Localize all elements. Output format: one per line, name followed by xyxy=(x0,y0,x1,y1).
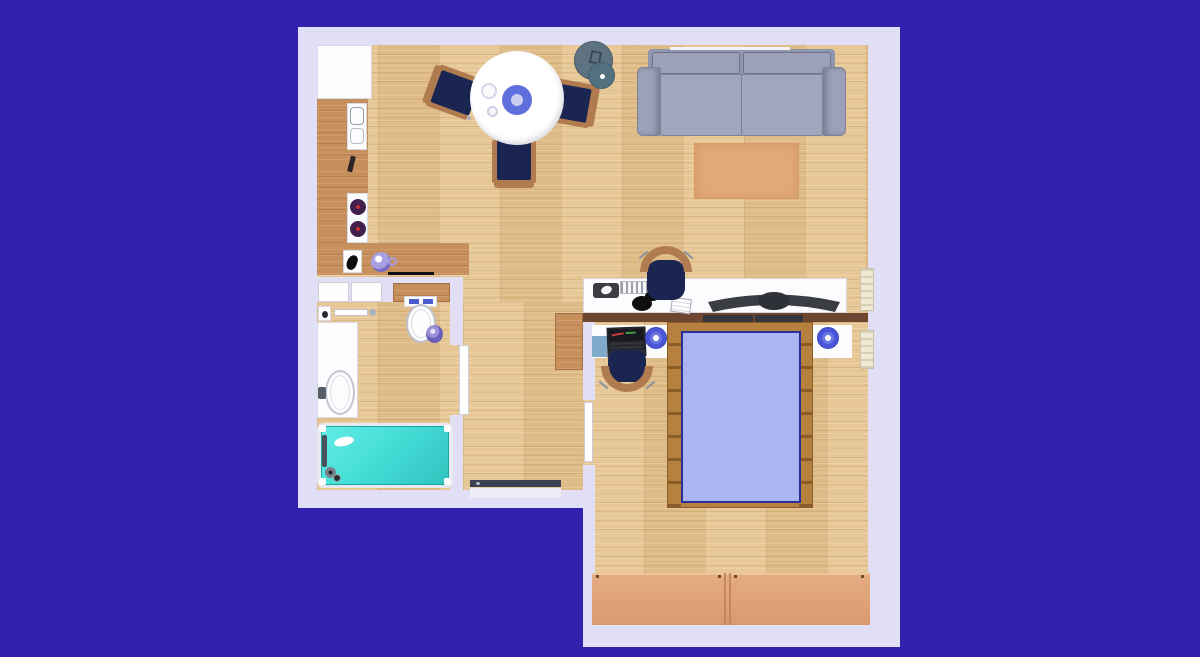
wardrobe-seam-1 xyxy=(724,573,726,625)
soap-dispenser[interactable] xyxy=(318,306,331,321)
bedroom-chair[interactable] xyxy=(600,350,656,406)
tub-corner-4 xyxy=(444,478,451,485)
bedside-lamp-right[interactable] xyxy=(817,327,839,349)
towel-bar[interactable] xyxy=(334,309,368,316)
chair-seat xyxy=(497,139,531,180)
sofa-arm-right xyxy=(822,67,846,136)
basin-faucet xyxy=(318,387,326,399)
wardrobe-seam-2 xyxy=(729,573,731,625)
radiator-upper[interactable] xyxy=(860,268,874,311)
table-glass[interactable] xyxy=(481,83,497,99)
bathroom-door-leaf[interactable] xyxy=(459,345,469,415)
wardrobe-top-highlight xyxy=(592,573,870,575)
lamp-bulb-dot xyxy=(600,74,605,79)
tub-drain xyxy=(333,474,341,482)
cooktop[interactable] xyxy=(347,193,368,243)
wall-knob xyxy=(369,309,376,316)
laptop-screen xyxy=(609,328,644,341)
burner-bottom xyxy=(350,221,366,237)
mouse xyxy=(600,284,613,295)
tub-corner-1 xyxy=(319,425,326,432)
tub-faucet-pipe xyxy=(322,435,327,467)
plate-center xyxy=(511,94,523,106)
wall-left xyxy=(298,27,317,508)
wardrobe-handle-2 xyxy=(718,575,721,578)
table-plate[interactable] xyxy=(502,85,532,115)
bedside-lamp-left[interactable] xyxy=(645,327,667,349)
table-cup[interactable] xyxy=(487,106,498,117)
bed-rail-left xyxy=(668,323,681,507)
vanity-counter[interactable] xyxy=(317,322,358,418)
radiator-lower[interactable] xyxy=(860,330,874,369)
flush-button-left[interactable] xyxy=(409,299,419,304)
kitchen-sink[interactable] xyxy=(347,103,367,150)
wall-bedroom-top-glass-2 xyxy=(755,315,803,322)
burner-top xyxy=(350,199,366,215)
sofa-top-highlight xyxy=(670,47,790,50)
wall-bathroom-hall-upper xyxy=(450,295,463,345)
kitchen-corner-unit[interactable] xyxy=(343,250,362,273)
wall-bottom-bedroom xyxy=(583,625,900,647)
waste-bin[interactable] xyxy=(426,325,443,343)
sink-basin-bottom xyxy=(350,128,364,144)
bathtub[interactable] xyxy=(317,423,453,488)
entry-door-threshold xyxy=(470,488,561,498)
wall-door-panel-1[interactable] xyxy=(318,282,349,302)
wardrobe-handle-3 xyxy=(734,575,737,578)
wall-bedroom-top-glass-1 xyxy=(703,315,753,322)
rug[interactable] xyxy=(694,143,799,199)
sofa-seat-left xyxy=(660,74,742,136)
black-kettle xyxy=(345,254,359,271)
sofa-arm-left xyxy=(637,67,661,136)
sink-basin-top xyxy=(350,107,364,125)
washbasin xyxy=(325,370,355,415)
bedroom-door-leaf[interactable] xyxy=(584,402,593,462)
floor-plan-canvas xyxy=(0,0,1200,657)
wardrobe-handle-1 xyxy=(596,575,599,578)
wardrobe[interactable] xyxy=(592,573,870,625)
wardrobe-handle-4 xyxy=(861,575,864,578)
tub-corner-3 xyxy=(319,478,326,485)
entry-door[interactable] xyxy=(470,480,561,487)
refrigerator[interactable] xyxy=(317,45,372,99)
bed[interactable] xyxy=(667,322,813,508)
hall-cabinet[interactable] xyxy=(555,313,583,370)
tub-corner-2 xyxy=(444,425,451,432)
sofa-back-cushion-left xyxy=(652,52,740,74)
sofa-back-cushion-right xyxy=(743,52,831,74)
counter-black-bar xyxy=(388,272,434,275)
sofa[interactable] xyxy=(637,47,846,136)
wall-door-panel-2[interactable] xyxy=(351,282,382,302)
teapot-handle xyxy=(388,257,397,266)
mattress xyxy=(681,331,801,503)
desk-chair[interactable] xyxy=(638,246,694,302)
curved-monitor[interactable] xyxy=(704,285,844,315)
chair-back xyxy=(494,179,534,188)
sofa-seat-right xyxy=(741,74,823,136)
mouse-pad[interactable] xyxy=(593,283,619,298)
door-handle xyxy=(476,482,480,485)
floor-lamp-base xyxy=(588,62,615,89)
flush-button-right[interactable] xyxy=(423,299,433,304)
